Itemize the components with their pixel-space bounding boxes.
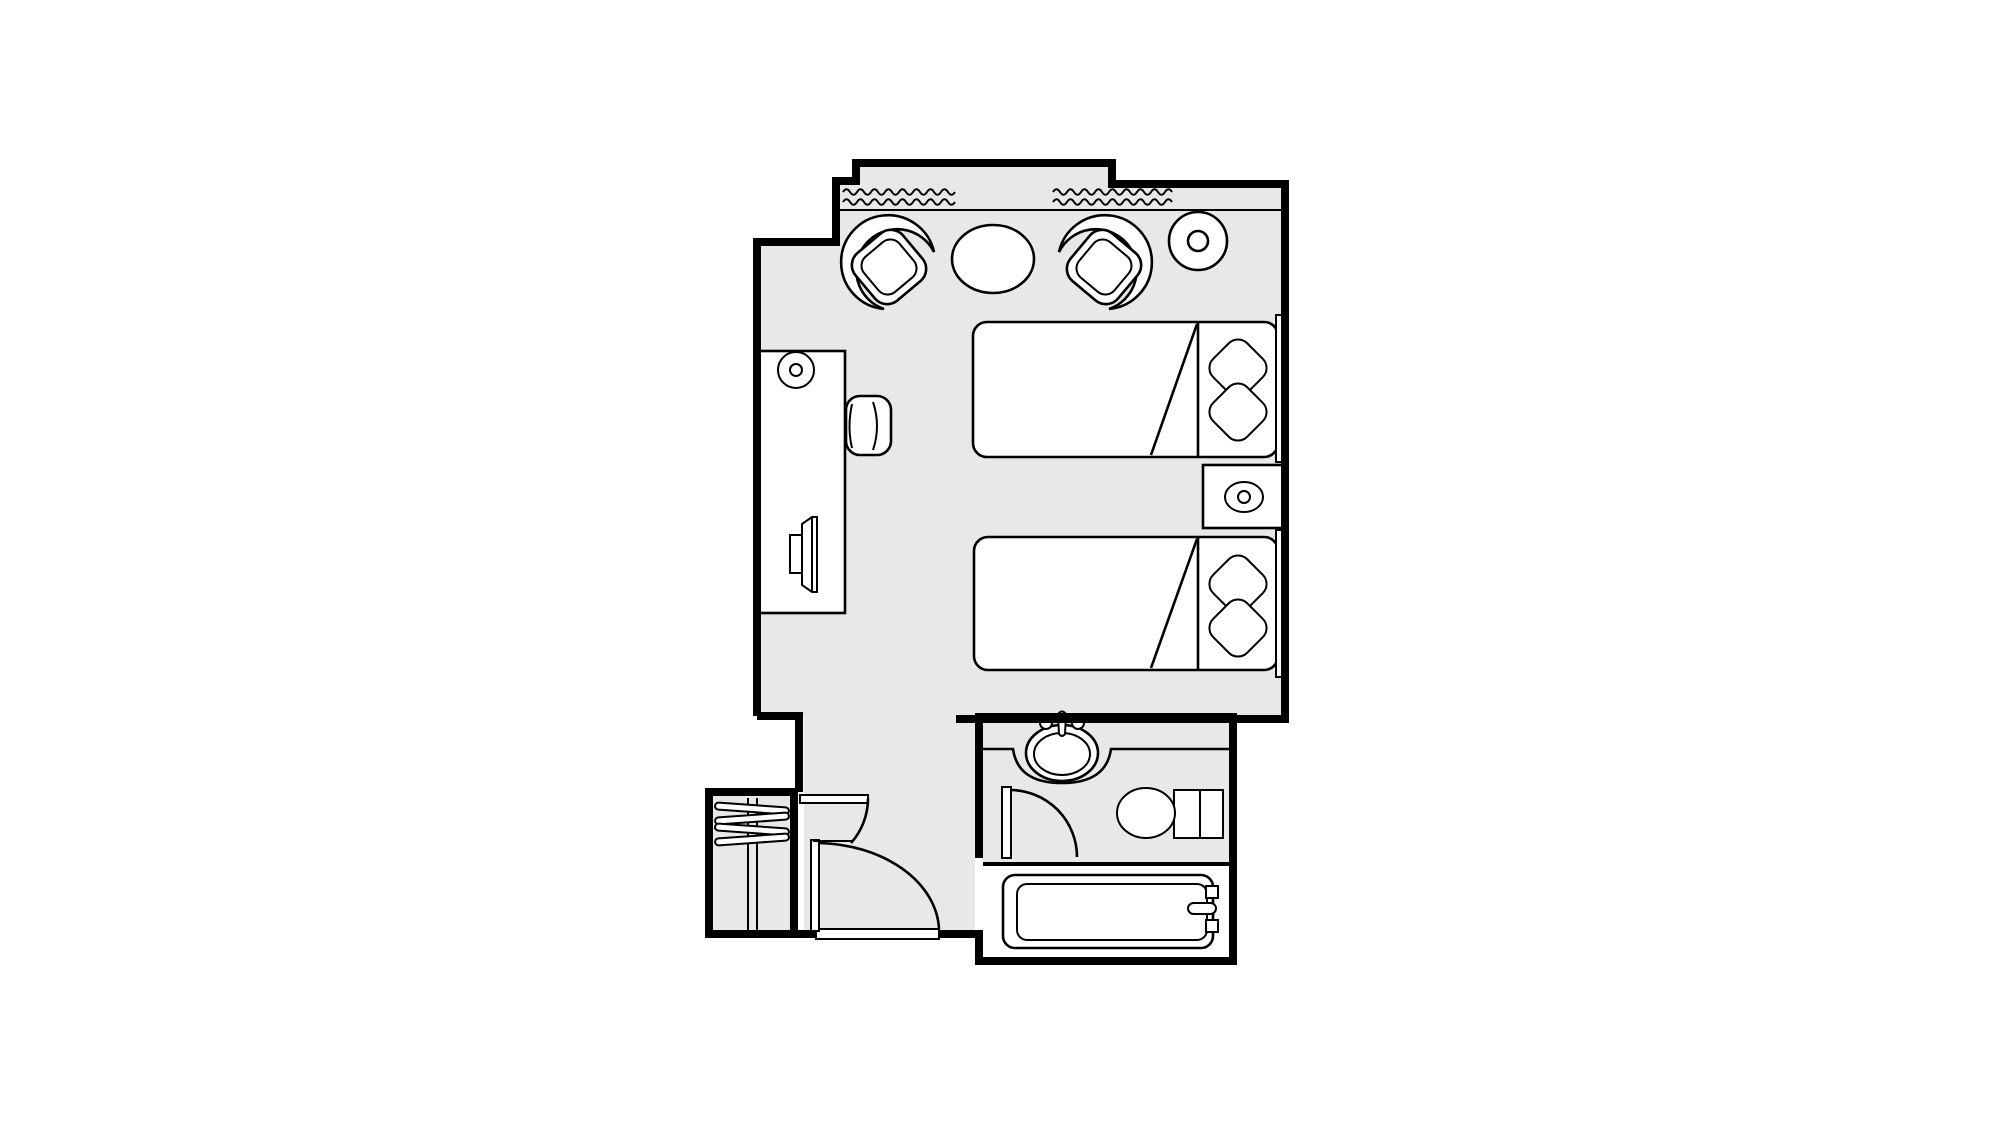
toilet-seat-hinge (1174, 790, 1200, 838)
corridor-left-wall (757, 716, 799, 792)
toilet-bowl (1117, 788, 1175, 838)
floor-lamp-icon (1169, 212, 1227, 270)
floor-plan-page (0, 0, 2000, 1125)
sink-bowl (1034, 733, 1090, 775)
corridor-floor (804, 715, 975, 932)
bathtub-icon (1003, 875, 1218, 948)
tv-screen (802, 517, 817, 592)
bathtub-tap-hot (1206, 886, 1218, 898)
toilet-tank (1200, 790, 1223, 838)
tv-bracket (790, 535, 802, 573)
floor-lamp-pole (1188, 231, 1208, 251)
desk-lamp-pole (790, 364, 802, 376)
bed-2 (974, 530, 1287, 677)
entry-threshold (816, 929, 939, 939)
floor-plan-drawing (0, 0, 2000, 1125)
bathroom-door-leaf (1002, 787, 1011, 858)
bathtub-basin (1017, 884, 1207, 940)
bed-1 (973, 315, 1287, 462)
nightstand-lamp-pole (1238, 491, 1250, 503)
bathtub-spout (1188, 903, 1216, 914)
desk-chair-icon (846, 396, 891, 455)
round-table-icon (952, 225, 1034, 293)
entry-door-leaf (811, 840, 819, 931)
nightstand (1203, 465, 1285, 528)
bathtub-tap-cold (1206, 920, 1218, 932)
vestibule-door-leaf (800, 795, 868, 803)
